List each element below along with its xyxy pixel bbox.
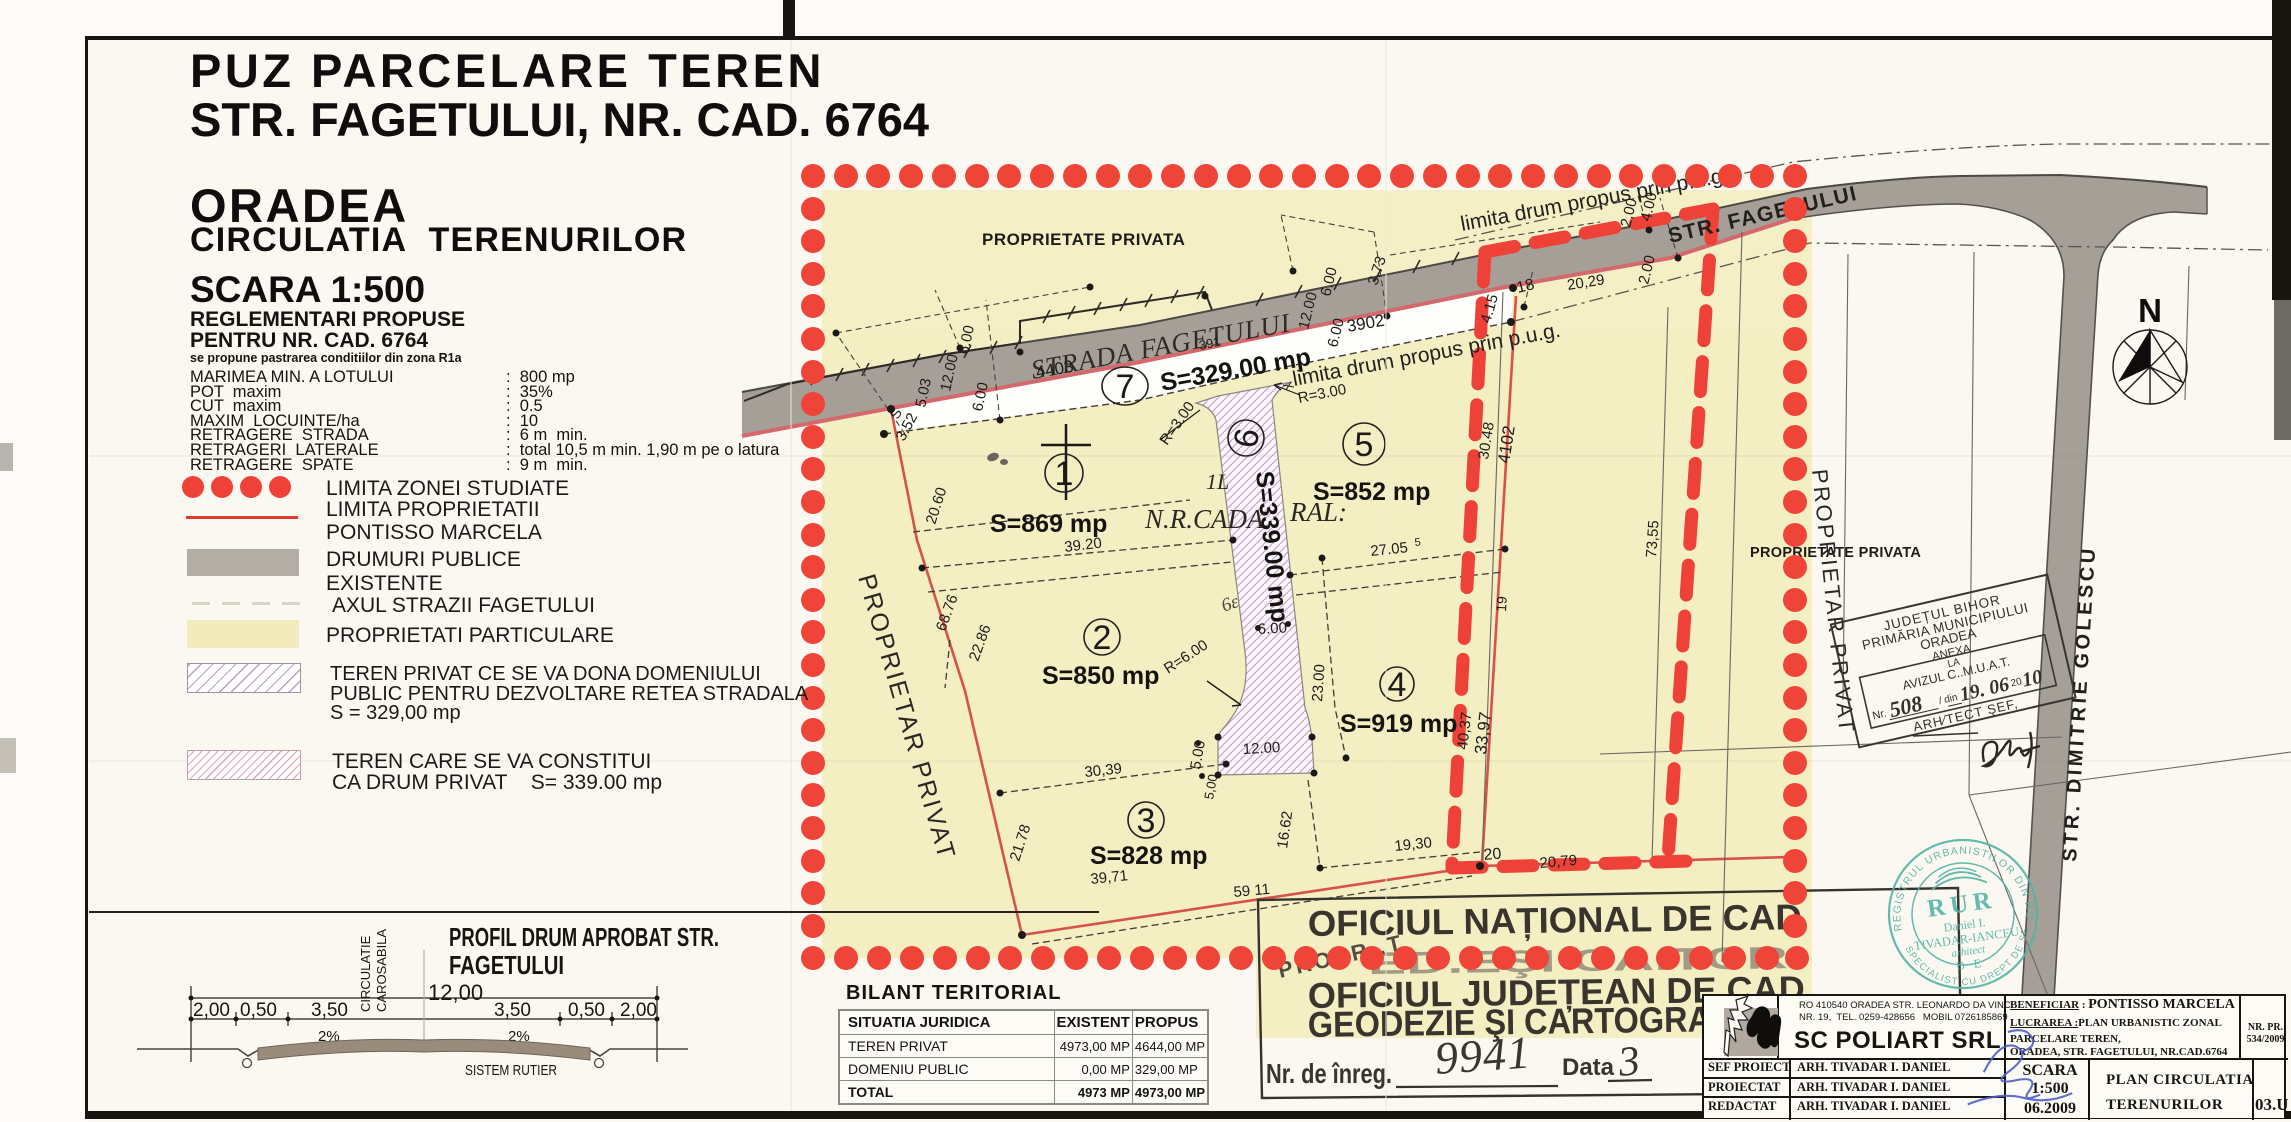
svg-text:PROPRIETATE PRIVATA: PROPRIETATE PRIVATA	[982, 230, 1185, 249]
svg-text:4: 4	[1388, 666, 1407, 704]
svg-text:PROPRIETAR PRIVAT: PROPRIETAR PRIVAT	[1807, 468, 1860, 735]
svg-text:PROFIL DRUM APROBAT STR.: PROFIL DRUM APROBAT STR.	[449, 922, 719, 952]
svg-text:2: 2	[1093, 619, 1112, 657]
svg-text:9941: 9941	[1433, 1026, 1532, 1084]
svg-text:CAROSABILA: CAROSABILA	[374, 929, 389, 1012]
svg-text:59 11: 59 11	[1233, 881, 1271, 901]
svg-text:12,00: 12,00	[428, 980, 483, 1005]
svg-text:RAL:: RAL:	[1289, 497, 1347, 527]
svg-text:S=919 mp: S=919 mp	[1340, 710, 1457, 738]
svg-text:20: 20	[1483, 845, 1502, 863]
svg-text:20,79: 20,79	[1539, 852, 1578, 872]
svg-text:N: N	[2138, 292, 2162, 329]
svg-text:SISTEM RUTIER: SISTEM RUTIER	[465, 1062, 557, 1079]
svg-text:73,55: 73,55	[1643, 520, 1663, 559]
svg-text:3,50: 3,50	[494, 1000, 531, 1021]
svg-text:23.00: 23.00	[1309, 664, 1329, 703]
svg-text:6.00: 6.00	[1257, 619, 1287, 638]
svg-text:3: 3	[1615, 1038, 1642, 1086]
svg-text:12.00: 12.00	[1242, 739, 1280, 758]
svg-text:3: 3	[1137, 802, 1156, 840]
svg-text:3,50: 3,50	[311, 1000, 348, 1021]
svg-text:N.R.CADA: N.R.CADA	[1144, 504, 1264, 534]
svg-text:0,50: 0,50	[568, 1000, 605, 1021]
svg-text:5: 5	[1355, 426, 1374, 464]
svg-text:2,00: 2,00	[620, 1000, 657, 1021]
svg-text:5: 5	[1414, 536, 1421, 549]
svg-text:1: 1	[1055, 455, 1074, 493]
svg-text:2,00: 2,00	[193, 1000, 230, 1021]
svg-text:Nr.: Nr.	[1871, 708, 1887, 723]
svg-text:Data: Data	[1562, 1054, 1615, 1081]
svg-text:S=850 mp: S=850 mp	[1042, 662, 1159, 690]
svg-text:S=828 mp: S=828 mp	[1090, 842, 1207, 870]
svg-text:FAGETULUI: FAGETULUI	[449, 950, 564, 980]
svg-text:CIRCULATIE: CIRCULATIE	[358, 935, 373, 1012]
svg-text:1L: 1L	[1206, 469, 1229, 494]
svg-text:S=869 mp: S=869 mp	[990, 510, 1107, 538]
svg-text:D E: D E	[1955, 956, 1985, 974]
svg-text:19: 19	[1493, 596, 1510, 613]
svg-text:Nr. de înreg.: Nr. de înreg.	[1266, 1058, 1392, 1089]
svg-text:0,50: 0,50	[240, 1000, 277, 1021]
svg-text:7: 7	[1116, 368, 1135, 406]
